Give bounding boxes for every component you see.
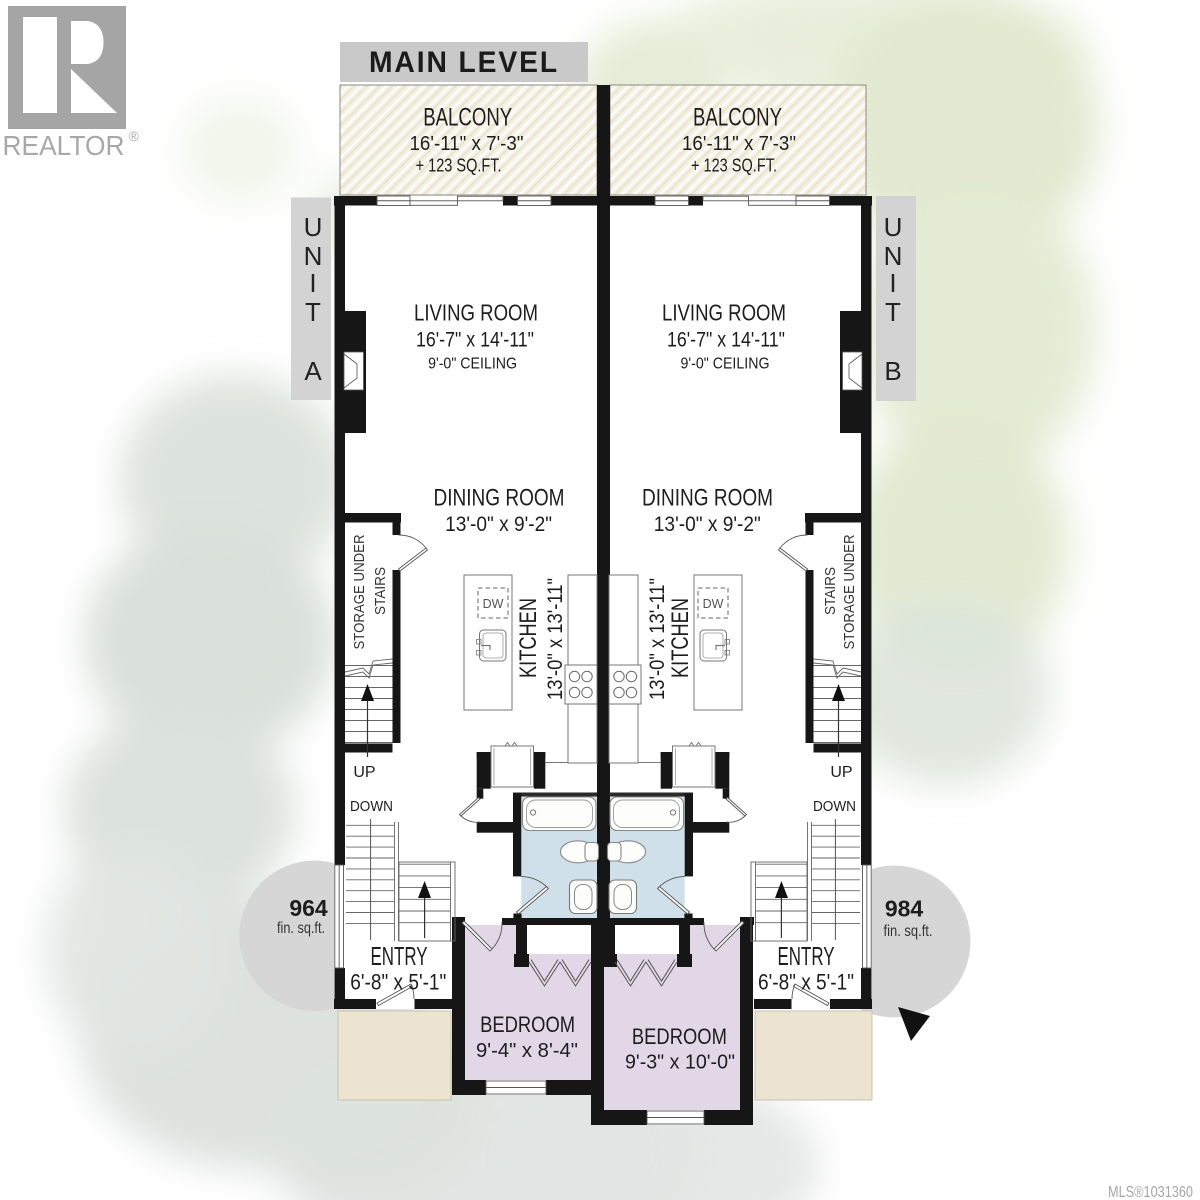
- svg-text:+ 123 SQ.FT.: + 123 SQ.FT.: [416, 156, 502, 176]
- svg-text:T: T: [305, 297, 321, 327]
- svg-text:fin. sq.ft.: fin. sq.ft.: [884, 923, 933, 940]
- svg-text:16'-11" x 7'-3": 16'-11" x 7'-3": [410, 133, 524, 155]
- svg-text:MLS®1031360: MLS®1031360: [1108, 1184, 1193, 1200]
- svg-text:DINING ROOM: DINING ROOM: [642, 485, 773, 512]
- svg-text:964: 964: [289, 895, 328, 921]
- svg-text:16'-11" x 7'-3": 16'-11" x 7'-3": [682, 133, 796, 155]
- svg-text:B: B: [884, 356, 901, 386]
- svg-text:BALCONY: BALCONY: [693, 103, 782, 131]
- svg-text:U: U: [884, 212, 903, 242]
- svg-text:13'-0" x 13'-11": 13'-0" x 13'-11": [544, 578, 567, 700]
- svg-text:+ 123 SQ.FT.: + 123 SQ.FT.: [691, 156, 777, 176]
- svg-text:6'-8" x 5'-1": 6'-8" x 5'-1": [758, 970, 854, 995]
- svg-text:STORAGE UNDER: STORAGE UNDER: [841, 534, 858, 649]
- svg-text:DW: DW: [703, 597, 724, 611]
- svg-text:®: ®: [129, 128, 140, 144]
- svg-text:UP: UP: [830, 764, 852, 781]
- svg-text:I: I: [889, 268, 896, 298]
- svg-text:N: N: [304, 241, 323, 271]
- svg-text:6'-8" x 5'-1": 6'-8" x 5'-1": [350, 970, 446, 995]
- svg-text:fin. sq.ft.: fin. sq.ft.: [277, 920, 325, 937]
- svg-text:DOWN: DOWN: [350, 798, 393, 815]
- svg-text:LIVING ROOM: LIVING ROOM: [414, 300, 538, 326]
- svg-text:BALCONY: BALCONY: [423, 103, 512, 131]
- svg-text:ENTRY: ENTRY: [371, 941, 428, 971]
- svg-text:9'-4" x 8'-4": 9'-4" x 8'-4": [476, 1040, 578, 1062]
- svg-text:LIVING ROOM: LIVING ROOM: [662, 300, 786, 326]
- svg-text:984: 984: [885, 896, 924, 922]
- svg-text:MAIN LEVEL: MAIN LEVEL: [369, 46, 559, 79]
- svg-text:9'-0" CEILING: 9'-0" CEILING: [681, 356, 770, 373]
- svg-text:STAIRS: STAIRS: [822, 567, 839, 615]
- svg-text:REALTOR: REALTOR: [3, 130, 125, 161]
- svg-text:BEDROOM: BEDROOM: [632, 1024, 727, 1049]
- svg-text:13'-0" x 13'-11": 13'-0" x 13'-11": [646, 578, 669, 700]
- svg-text:16'-7" x 14'-11": 16'-7" x 14'-11": [667, 329, 785, 352]
- svg-text:STORAGE UNDER: STORAGE UNDER: [351, 534, 368, 649]
- svg-text:I: I: [309, 268, 316, 298]
- svg-text:ENTRY: ENTRY: [778, 941, 835, 971]
- svg-text:T: T: [885, 297, 901, 327]
- svg-text:N: N: [884, 241, 903, 271]
- svg-text:BEDROOM: BEDROOM: [480, 1012, 575, 1037]
- svg-text:13'-0" x 9'-2": 13'-0" x 9'-2": [654, 513, 761, 536]
- svg-text:UP: UP: [353, 764, 375, 781]
- svg-text:9'-0" CEILING: 9'-0" CEILING: [428, 356, 517, 373]
- svg-text:KITCHEN: KITCHEN: [515, 598, 542, 678]
- svg-text:9'-3" x 10'-0": 9'-3" x 10'-0": [625, 1052, 735, 1074]
- svg-text:DOWN: DOWN: [813, 798, 856, 815]
- svg-text:A: A: [304, 356, 322, 386]
- svg-text:KITCHEN: KITCHEN: [667, 598, 694, 678]
- svg-text:13'-0" x 9'-2": 13'-0" x 9'-2": [445, 513, 552, 536]
- svg-text:16'-7" x 14'-11": 16'-7" x 14'-11": [416, 329, 534, 352]
- svg-text:DW: DW: [483, 597, 504, 611]
- svg-text:STAIRS: STAIRS: [372, 567, 389, 615]
- svg-text:DINING ROOM: DINING ROOM: [434, 485, 565, 512]
- svg-text:U: U: [304, 212, 323, 242]
